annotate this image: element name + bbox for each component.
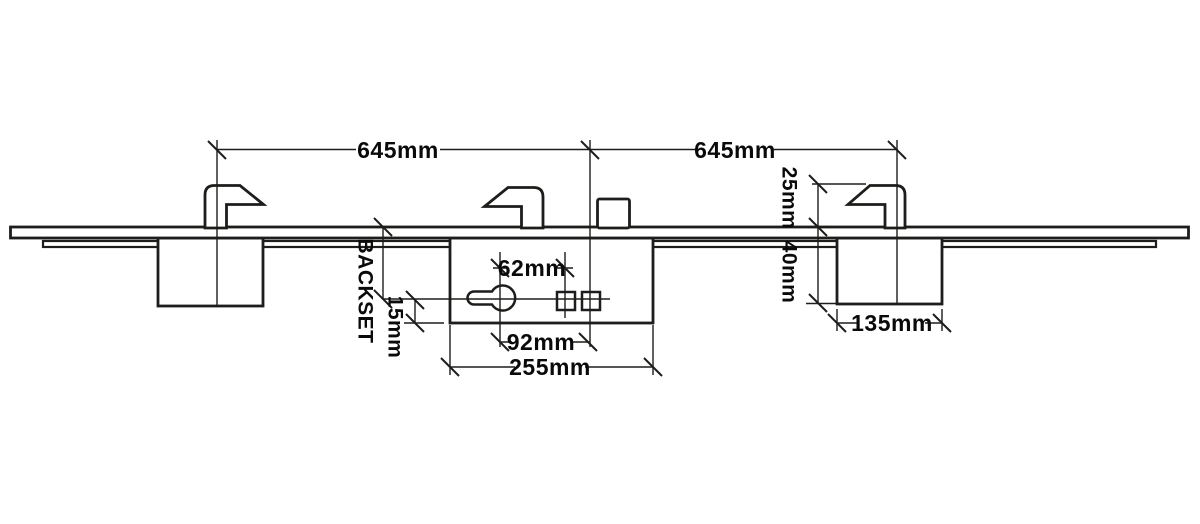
dim-case-width-label: 255mm (509, 354, 591, 380)
diagram-canvas: 645mm 645mm 62mm 92mm 255mm 135mm 25mm 4… (0, 0, 1200, 524)
dim-right-span-label: 645mm (694, 137, 776, 163)
dim-gearbox-width-label: 135mm (851, 310, 933, 336)
lock-dimension-diagram: 645mm 645mm 62mm 92mm 255mm 135mm 25mm 4… (0, 0, 1200, 524)
dim-hook-height-label: 25mm (778, 167, 801, 230)
dim-centerline-offset-label: 15mm (384, 296, 407, 359)
latch-bolt (598, 199, 630, 228)
backset-label: BACKSET (354, 238, 377, 343)
spindle-hole-2 (582, 292, 600, 310)
left-gearbox (158, 238, 263, 306)
dim-cylinder-to-latch-label: 92mm (507, 329, 575, 355)
dim-left-span-label: 645mm (357, 137, 439, 163)
dim-cylinder-to-spindle-label: 62mm (498, 255, 566, 281)
center-hook-bolt (485, 188, 544, 229)
left-hook-bolt (205, 186, 264, 229)
spindle-hole-1 (557, 292, 575, 310)
right-gearbox (837, 238, 942, 304)
dim-case-depth-label: 40mm (778, 241, 801, 304)
